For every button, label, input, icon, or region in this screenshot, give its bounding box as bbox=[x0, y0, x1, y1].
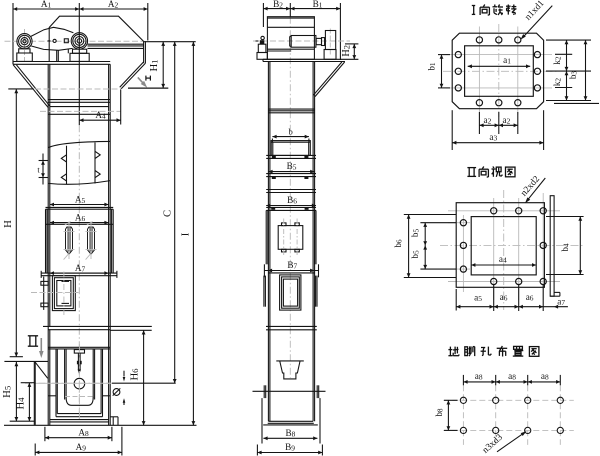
svg-text:A4: A4 bbox=[95, 110, 106, 121]
svg-text:a5: a5 bbox=[474, 293, 482, 304]
svg-text:B1: B1 bbox=[313, 0, 323, 9]
svg-text:b6: b6 bbox=[393, 239, 404, 248]
svg-text:A6: A6 bbox=[75, 212, 86, 223]
svg-text:a8: a8 bbox=[508, 371, 516, 382]
svg-text:b3: b3 bbox=[568, 71, 579, 80]
svg-text:b8: b8 bbox=[434, 408, 445, 417]
svg-text:a6: a6 bbox=[500, 292, 508, 303]
svg-text:C: C bbox=[163, 210, 174, 217]
svg-text:a8: a8 bbox=[475, 371, 483, 382]
svg-text:b4: b4 bbox=[560, 243, 571, 252]
svg-text:H6: H6 bbox=[130, 368, 141, 381]
svg-text:H4: H4 bbox=[16, 397, 27, 410]
svg-text:a1: a1 bbox=[503, 55, 511, 66]
svg-text:B6: B6 bbox=[287, 195, 297, 206]
svg-text:a6: a6 bbox=[526, 292, 534, 303]
svg-text:H: H bbox=[3, 220, 14, 228]
svg-text:B5: B5 bbox=[287, 161, 297, 172]
svg-text:a3: a3 bbox=[489, 132, 497, 143]
svg-text:b5: b5 bbox=[410, 229, 421, 238]
svg-text:H5: H5 bbox=[2, 385, 13, 398]
svg-text:H1: H1 bbox=[149, 59, 160, 71]
svg-text:A7: A7 bbox=[75, 263, 86, 274]
svg-text:k2: k2 bbox=[552, 56, 563, 65]
svg-text:I: I bbox=[180, 232, 191, 236]
svg-text:B8: B8 bbox=[285, 428, 295, 439]
svg-text:a8: a8 bbox=[541, 371, 549, 382]
svg-text:b1: b1 bbox=[427, 62, 438, 71]
svg-text:B2: B2 bbox=[273, 0, 283, 9]
svg-text:a2: a2 bbox=[484, 115, 492, 126]
svg-text:B9: B9 bbox=[285, 442, 295, 453]
svg-text:k2: k2 bbox=[552, 78, 563, 87]
svg-text:A1: A1 bbox=[41, 0, 52, 10]
svg-text:B7: B7 bbox=[287, 260, 297, 271]
svg-text:b5: b5 bbox=[410, 250, 421, 259]
svg-text:b: b bbox=[289, 126, 293, 136]
svg-text:A9: A9 bbox=[76, 442, 87, 453]
svg-text:A8: A8 bbox=[78, 428, 89, 439]
svg-text:a7: a7 bbox=[557, 297, 565, 308]
svg-text:A2: A2 bbox=[108, 0, 119, 10]
svg-text:a2: a2 bbox=[503, 115, 511, 126]
svg-text:a4: a4 bbox=[499, 254, 507, 265]
svg-text:H2: H2 bbox=[341, 45, 352, 57]
svg-text:A5: A5 bbox=[75, 194, 86, 205]
